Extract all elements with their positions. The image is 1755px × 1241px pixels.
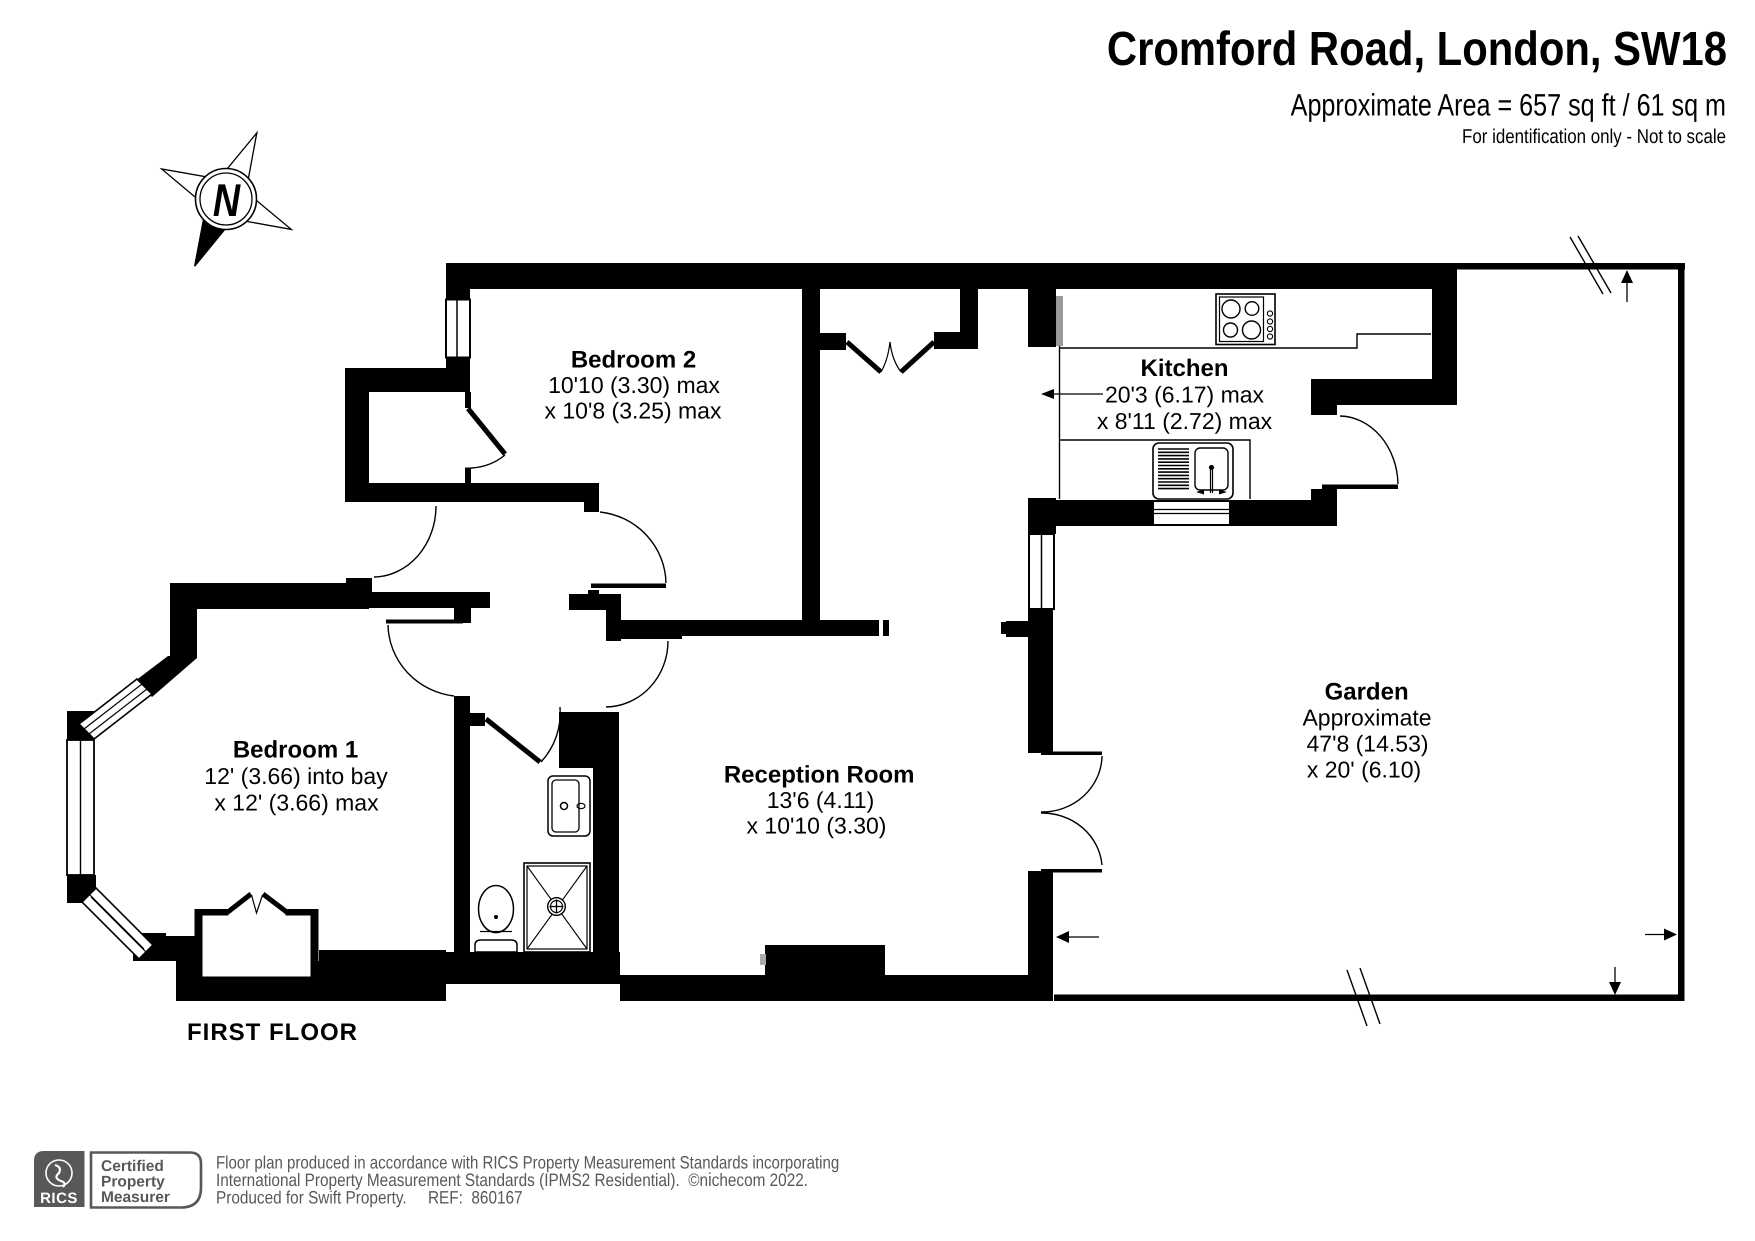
svg-text:Bedroom 2: Bedroom 2 [571,347,696,374]
svg-text:Property: Property [101,1174,165,1191]
svg-text:Cromford Road, London, SW18: Cromford Road, London, SW18 [1107,23,1727,76]
svg-text:Approximate Area = 657 sq ft /: Approximate Area = 657 sq ft / 61 sq m [1291,88,1726,123]
svg-text:RICS: RICS [40,1190,78,1207]
svg-text:20'3 (6.17) max: 20'3 (6.17) max [1105,382,1265,408]
svg-text:47'8 (14.53): 47'8 (14.53) [1306,731,1428,757]
svg-text:Measurer: Measurer [101,1189,170,1206]
svg-text:Certified: Certified [101,1158,164,1175]
svg-text:x 12' (3.66) max: x 12' (3.66) max [214,790,379,816]
svg-text:Garden: Garden [1325,679,1409,706]
svg-text:13'6 (4.11): 13'6 (4.11) [767,787,875,813]
svg-text:x 10'10 (3.30): x 10'10 (3.30) [747,813,887,839]
svg-text:x 10'8 (3.25) max: x 10'8 (3.25) max [545,398,722,424]
svg-text:12' (3.66) into bay: 12' (3.66) into bay [204,763,388,789]
svg-text:For identification only - Not: For identification only - Not to scale [1462,126,1726,148]
svg-text:Kitchen: Kitchen [1140,355,1228,382]
svg-text:FIRST FLOOR: FIRST FLOOR [187,1019,358,1046]
svg-text:N: N [213,174,241,226]
svg-text:x 8'11 (2.72) max: x 8'11 (2.72) max [1097,408,1273,434]
svg-text:Reception Room: Reception Room [724,762,915,789]
svg-text:x 20' (6.10): x 20' (6.10) [1307,757,1421,783]
svg-text:Bedroom 1: Bedroom 1 [233,737,358,764]
svg-text:Approximate: Approximate [1302,705,1431,731]
svg-text:10'10 (3.30) max: 10'10 (3.30) max [548,372,720,398]
svg-text:Produced for Swift Property.: Produced for Swift Property. REF: 860167 [216,1188,523,1208]
